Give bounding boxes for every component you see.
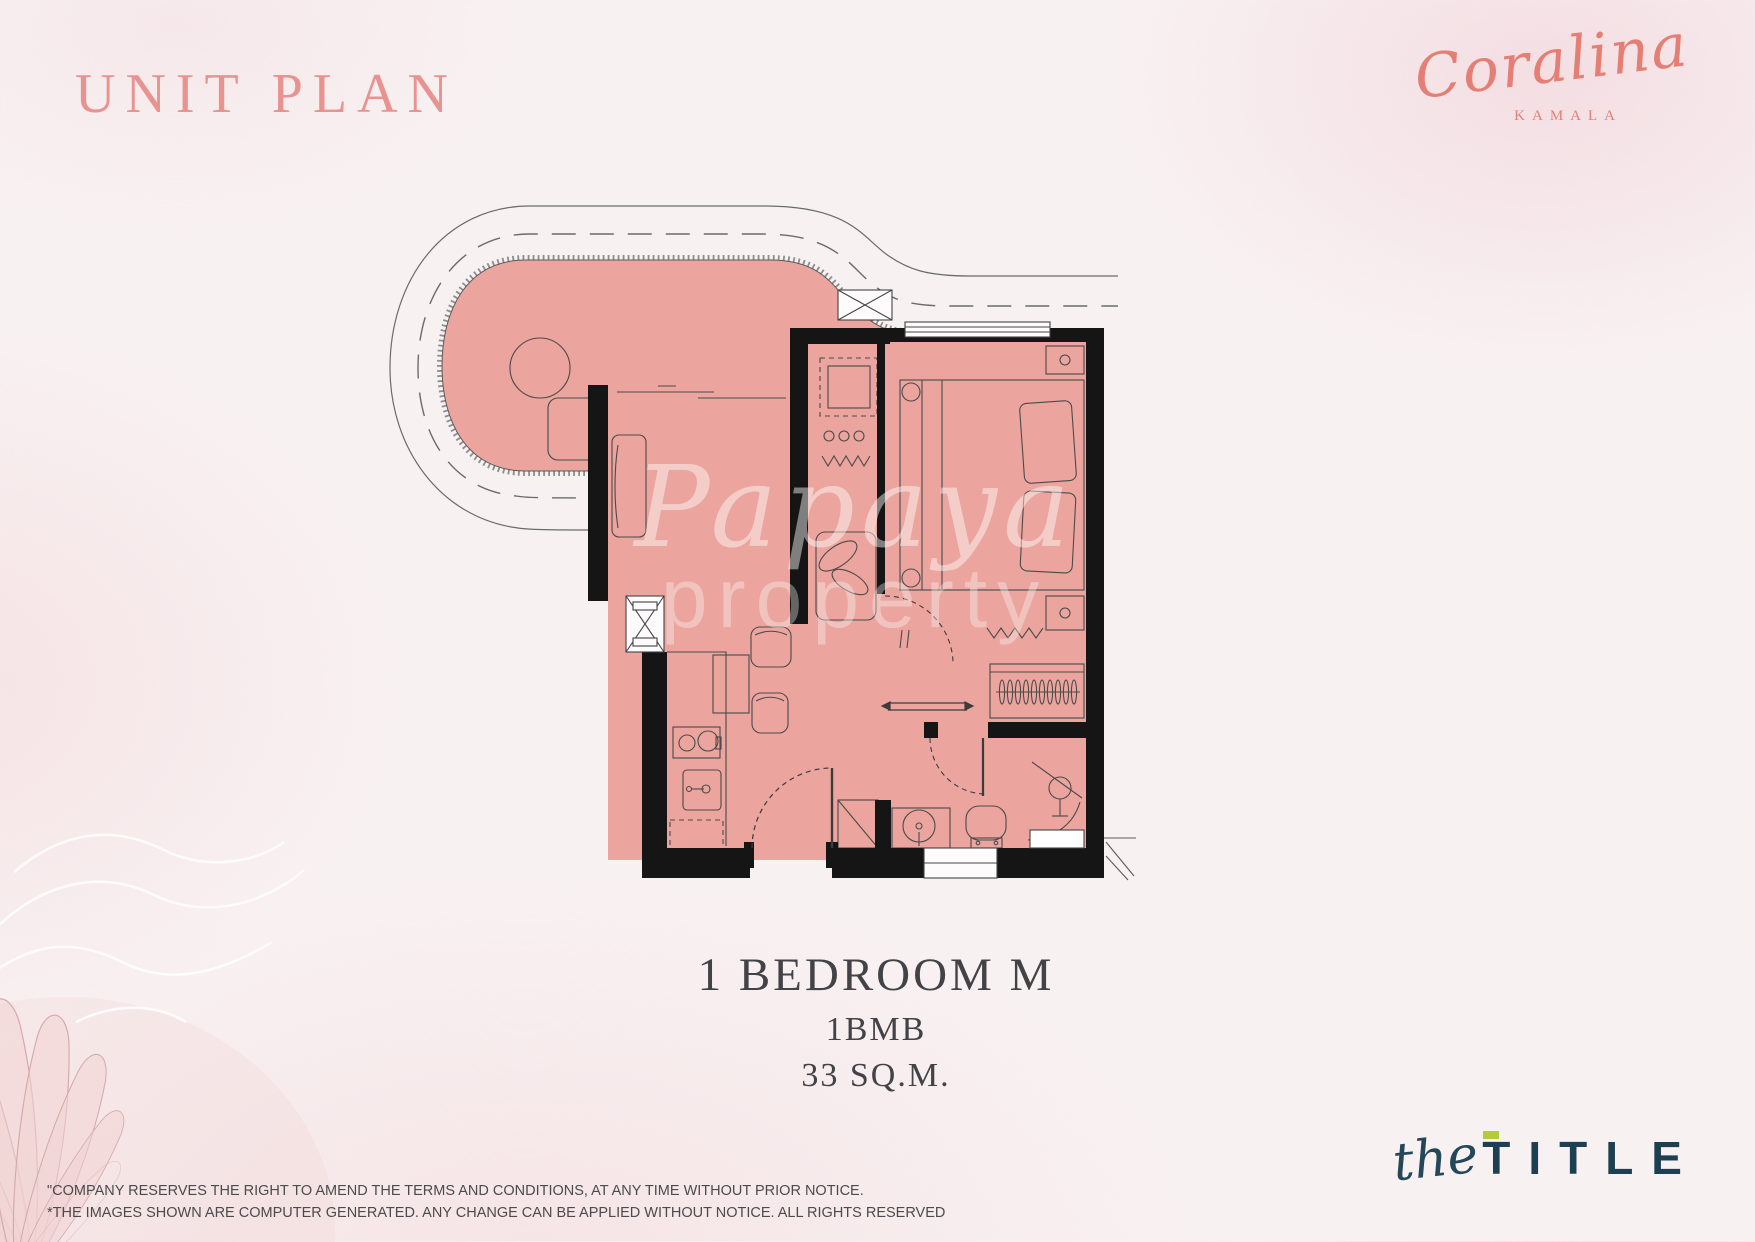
room-floors bbox=[608, 336, 1086, 860]
shower-tray bbox=[1030, 830, 1084, 848]
ac-unit bbox=[838, 290, 892, 320]
unit-title: 1 BEDROOM M bbox=[576, 952, 1176, 999]
page-title: UNIT PLAN bbox=[75, 62, 458, 126]
brand-logo: Coralina KAMALA bbox=[1220, 40, 1700, 125]
developer-logo-text: TITLE bbox=[1482, 1132, 1700, 1184]
developer-logo: the TITLE bbox=[1393, 1135, 1700, 1181]
disclaimer-line-2: *THE IMAGES SHOWN ARE COMPUTER GENERATED… bbox=[47, 1202, 945, 1224]
developer-logo-caps: TITLE bbox=[1482, 1135, 1700, 1181]
entry-step bbox=[1104, 838, 1136, 880]
unit-area: 33 SQ.M. bbox=[576, 1059, 1176, 1093]
floor-plan-drawing bbox=[430, 240, 1070, 840]
developer-logo-script: the bbox=[1391, 1135, 1480, 1185]
unit-caption: 1 BEDROOM M 1BMB 33 SQ.M. bbox=[576, 952, 1176, 1093]
unit-plan-page: { "page": { "title": "UNIT PLAN" }, "bra… bbox=[0, 0, 1755, 1241]
logo-green-accent bbox=[1483, 1131, 1499, 1139]
disclaimer-line-1: "COMPANY RESERVES THE RIGHT TO AMEND THE… bbox=[47, 1180, 945, 1202]
bedroom-window bbox=[905, 322, 1050, 337]
coral-illustration bbox=[0, 812, 500, 1242]
meter-box bbox=[626, 596, 664, 652]
unit-type-code: 1BMB bbox=[576, 1013, 1176, 1047]
disclaimer: "COMPANY RESERVES THE RIGHT TO AMEND THE… bbox=[47, 1180, 945, 1224]
floor-plan bbox=[430, 240, 1070, 840]
